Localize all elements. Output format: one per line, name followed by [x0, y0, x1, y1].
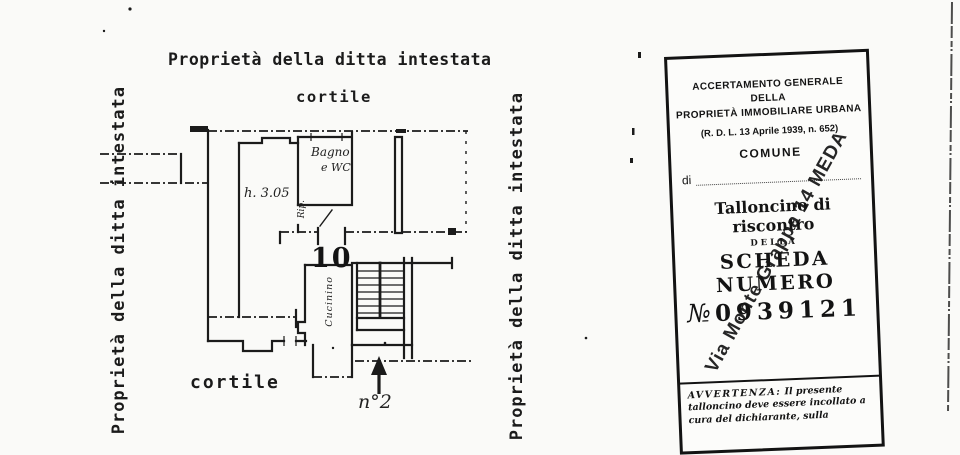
street-entrance-label: n°2	[358, 391, 392, 413]
slip-title: Talloncino di riscontro	[679, 193, 867, 238]
stamp-card-header: ACCERTAMENTO GENERALE DELLA PROPRIETÀ IM…	[674, 74, 863, 123]
page-title: Proprietà della ditta intestata	[168, 50, 491, 69]
numero-symbol: №	[687, 298, 712, 328]
courtyard-label-top: cortile	[296, 88, 372, 106]
side-label-left: Proprietà della ditta intestata	[109, 86, 129, 434]
plan-boundary-lines	[100, 131, 472, 377]
plan-wall-blocks	[190, 126, 456, 235]
blank-dotted-line	[696, 166, 861, 186]
closet-label: Rip.	[297, 200, 307, 218]
kitchenette-label: Cucinino	[324, 276, 335, 327]
bathroom-label-line1: Bagno	[311, 145, 350, 159]
serial-number-row: №0939121	[687, 292, 863, 328]
side-label-right: Proprietà della ditta intestata	[507, 92, 527, 440]
room-height-note: h. 3.05	[244, 186, 290, 201]
courtyard-label-bottom: cortile	[190, 372, 280, 393]
bathroom-label-line2: e WC	[321, 161, 351, 174]
scan-fold-line	[948, 2, 952, 413]
di-label: di	[682, 174, 692, 186]
scanned-cadastral-document: { "document": { "title": "Proprietà dell…	[0, 0, 960, 415]
unit-number: 10	[311, 243, 353, 274]
